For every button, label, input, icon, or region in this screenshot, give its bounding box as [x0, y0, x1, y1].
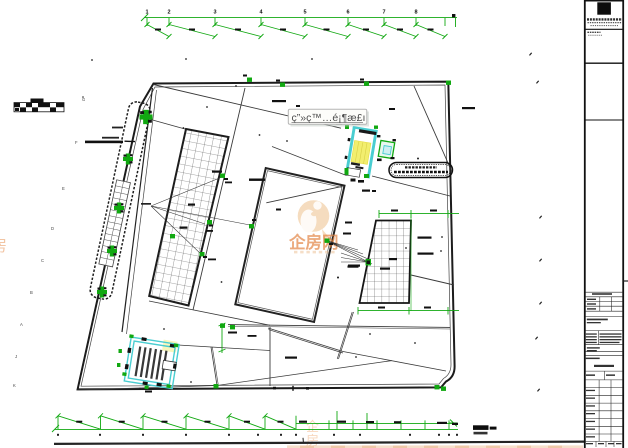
svg-text:2: 2 [167, 10, 170, 16]
svg-text:F: F [75, 140, 78, 145]
svg-text:房: 房 [0, 237, 7, 255]
svg-text:8: 8 [414, 10, 417, 16]
svg-text:4: 4 [259, 10, 263, 16]
svg-text:G: G [82, 97, 85, 102]
svg-text:J: J [15, 354, 17, 359]
svg-text:B: B [30, 290, 33, 295]
svg-text:6: 6 [346, 10, 349, 16]
svg-text:1: 1 [145, 10, 148, 16]
svg-text:ç”»ç™…é¡¶æ£ı: ç”»ç™…é¡¶æ£ı [292, 112, 366, 124]
svg-text:E: E [62, 186, 65, 191]
svg-text:企: 企 [306, 419, 319, 434]
svg-text:D: D [51, 226, 54, 231]
svg-text:A: A [20, 322, 23, 327]
svg-text:3: 3 [213, 10, 216, 16]
svg-text:7: 7 [382, 10, 385, 16]
svg-text:5: 5 [303, 10, 306, 16]
svg-text:C: C [41, 258, 44, 263]
svg-text:K: K [13, 383, 16, 388]
